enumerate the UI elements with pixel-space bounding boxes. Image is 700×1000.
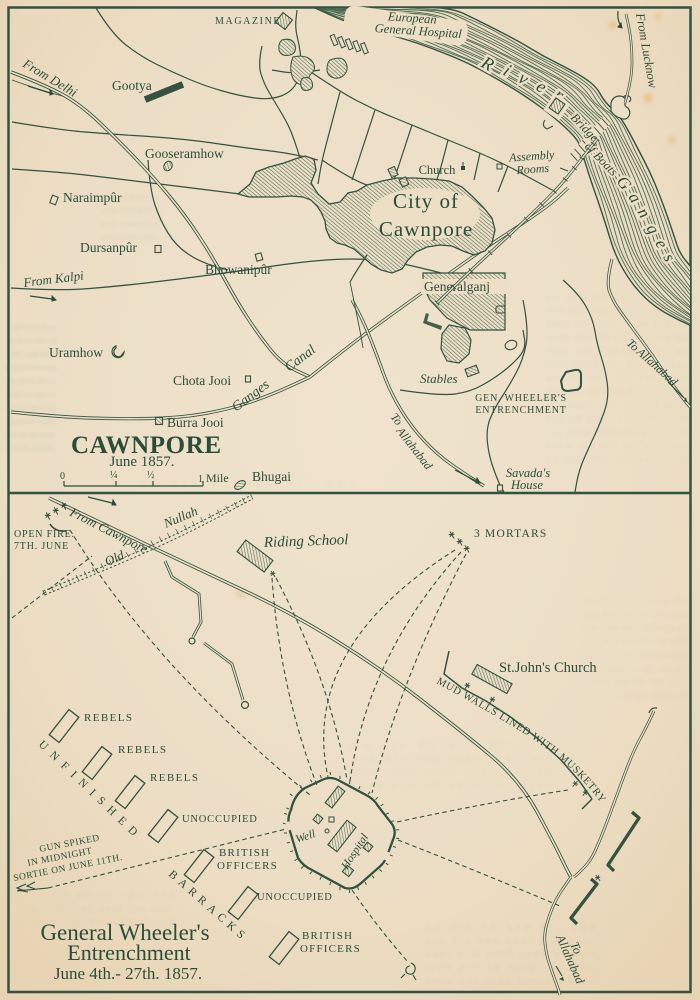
svg-text:½: ½ (147, 470, 155, 481)
svg-text:eniw sot erha lem tahw no: eniw sot erha lem tahw no (6, 376, 58, 387)
svg-text:1: 1 (198, 474, 203, 485)
svg-text:City of: City of (393, 189, 459, 213)
svg-text:0: 0 (60, 471, 65, 482)
svg-text:GEN. WHEELER'S: GEN. WHEELER'S (475, 393, 567, 404)
svg-text:ecn ad eniw sot erha lem: ecn ad eniw sot erha lem (6, 444, 58, 455)
svg-text:Rooms: Rooms (515, 161, 550, 177)
svg-text:REBELS: REBELS (150, 772, 199, 784)
svg-text:stm onel rede ecn ad eniw: stm onel rede ecn ad eniw (6, 430, 58, 441)
svg-text:uso dls ven aner stm onel: uso dls ven aner stm onel (583, 610, 688, 621)
svg-text:Uramhow: Uramhow (49, 345, 103, 360)
svg-text:Chota Jooi: Chota Jooi (173, 373, 231, 388)
svg-text:rede ecn ad eniw sot erha: rede ecn ad eniw sot erha (6, 363, 58, 374)
svg-text:dls ven aner stm onel rede: dls ven aner stm onel rede (6, 417, 58, 428)
svg-text:ale eo uso dls ven aner: ale eo uso dls ven aner (583, 677, 689, 688)
svg-text:aner stm onel rede ecn ad: aner stm onel rede ecn ad (100, 219, 161, 230)
svg-text:tahw no ale eo uso dls: tahw no ale eo uso dls (546, 441, 688, 452)
svg-text:Mile: Mile (206, 471, 229, 485)
svg-text:eniw sot erha lem tahw no: eniw sot erha lem tahw no (425, 976, 595, 987)
svg-text:rede ecn ad eniw sot erha: rede ecn ad eniw sot erha (583, 637, 688, 648)
svg-text:3 MORTARS: 3 MORTARS (474, 528, 547, 540)
svg-text:REBELS: REBELS (84, 712, 133, 724)
svg-text:¼: ¼ (110, 470, 118, 481)
svg-text:lem tahw no ale eo uso: lem tahw no ale eo uso (583, 664, 688, 675)
svg-text:Gootya: Gootya (112, 78, 152, 93)
svg-text:stm onel rede ecn ad eniw: stm onel rede ecn ad eniw (546, 400, 688, 411)
svg-text:sot erha lem tahw no ale: sot erha lem tahw no ale (546, 427, 688, 438)
svg-text:Naraimpûr: Naraimpûr (63, 190, 122, 205)
svg-text:OFFICERS: OFFICERS (217, 860, 278, 872)
svg-text:no ale eo uso dls ven: no ale eo uso dls ven (583, 596, 689, 607)
svg-text:Entrenchment: Entrenchment (67, 940, 190, 965)
svg-text:OFFICERS: OFFICERS (300, 943, 361, 955)
svg-text:aner stm onel rede ecn ad: aner stm onel rede ecn ad (546, 319, 689, 330)
svg-text:REBELS: REBELS (118, 744, 167, 756)
svg-text:lem tahw no ale eo uso: lem tahw no ale eo uso (6, 390, 58, 401)
svg-text:dls ven aner stm onel rede: dls ven aner stm onel rede (583, 691, 688, 702)
svg-text:St.John's Church: St.John's Church (499, 660, 597, 676)
svg-text:aner stm onel rede ecn ad: aner stm onel rede ecn ad (583, 623, 689, 634)
svg-text:eo uso dls ven aner stm: eo uso dls ven aner stm (546, 454, 688, 465)
svg-text:OPEN FIRE.: OPEN FIRE. (14, 529, 75, 540)
svg-text:rede ecn ad eniw sot erha: rede ecn ad eniw sot erha (546, 333, 688, 344)
svg-text:no ale eo uso dls ven: no ale eo uso dls ven (6, 322, 59, 333)
svg-text:BRITISH: BRITISH (302, 930, 353, 942)
svg-text:dls ven aner stm onel rede: dls ven aner stm onel rede (546, 387, 688, 398)
svg-text:7TH. JUNE: 7TH. JUNE (14, 541, 69, 552)
svg-text:uso dls ven aner stm onel: uso dls ven aner stm onel (30, 904, 175, 915)
svg-text:Generalganj: Generalganj (424, 279, 490, 294)
svg-text:Bhugai: Bhugai (252, 469, 291, 484)
svg-text:June 4th.- 27th. 1857.: June 4th.- 27th. 1857. (54, 964, 202, 983)
svg-text:Church: Church (419, 163, 457, 177)
svg-text:Burra Jooi: Burra Jooi (167, 415, 224, 430)
svg-text:Riding School: Riding School (263, 532, 349, 551)
svg-text:uso dls ven aner stm onel: uso dls ven aner stm onel (100, 206, 160, 217)
svg-text:eniw sot erha lem tahw no: eniw sot erha lem tahw no (546, 346, 688, 357)
svg-text:Bhowanipûr: Bhowanipûr (205, 262, 272, 277)
svg-text:Dursanpûr: Dursanpûr (80, 240, 137, 255)
svg-text:no ale eo uso dls ven: no ale eo uso dls ven (30, 890, 176, 901)
svg-text:BRITISH: BRITISH (219, 847, 270, 859)
svg-text:Cawnpore: Cawnpore (379, 217, 473, 241)
svg-text:eniw sot erha lem tahw no: eniw sot erha lem tahw no (583, 650, 688, 661)
svg-text:Gooseramhow: Gooseramhow (145, 146, 224, 161)
svg-text:Stables: Stables (420, 371, 458, 386)
svg-text:UNOCCUPIED: UNOCCUPIED (182, 814, 258, 825)
svg-text:June 1857.: June 1857. (110, 454, 175, 470)
svg-text:MAGAZINE: MAGAZINE (215, 16, 281, 27)
svg-text:UNOCCUPIED: UNOCCUPIED (257, 892, 333, 903)
svg-text:ENTRENCHMENT: ENTRENCHMENT (475, 405, 566, 416)
svg-text:House: House (510, 478, 543, 492)
